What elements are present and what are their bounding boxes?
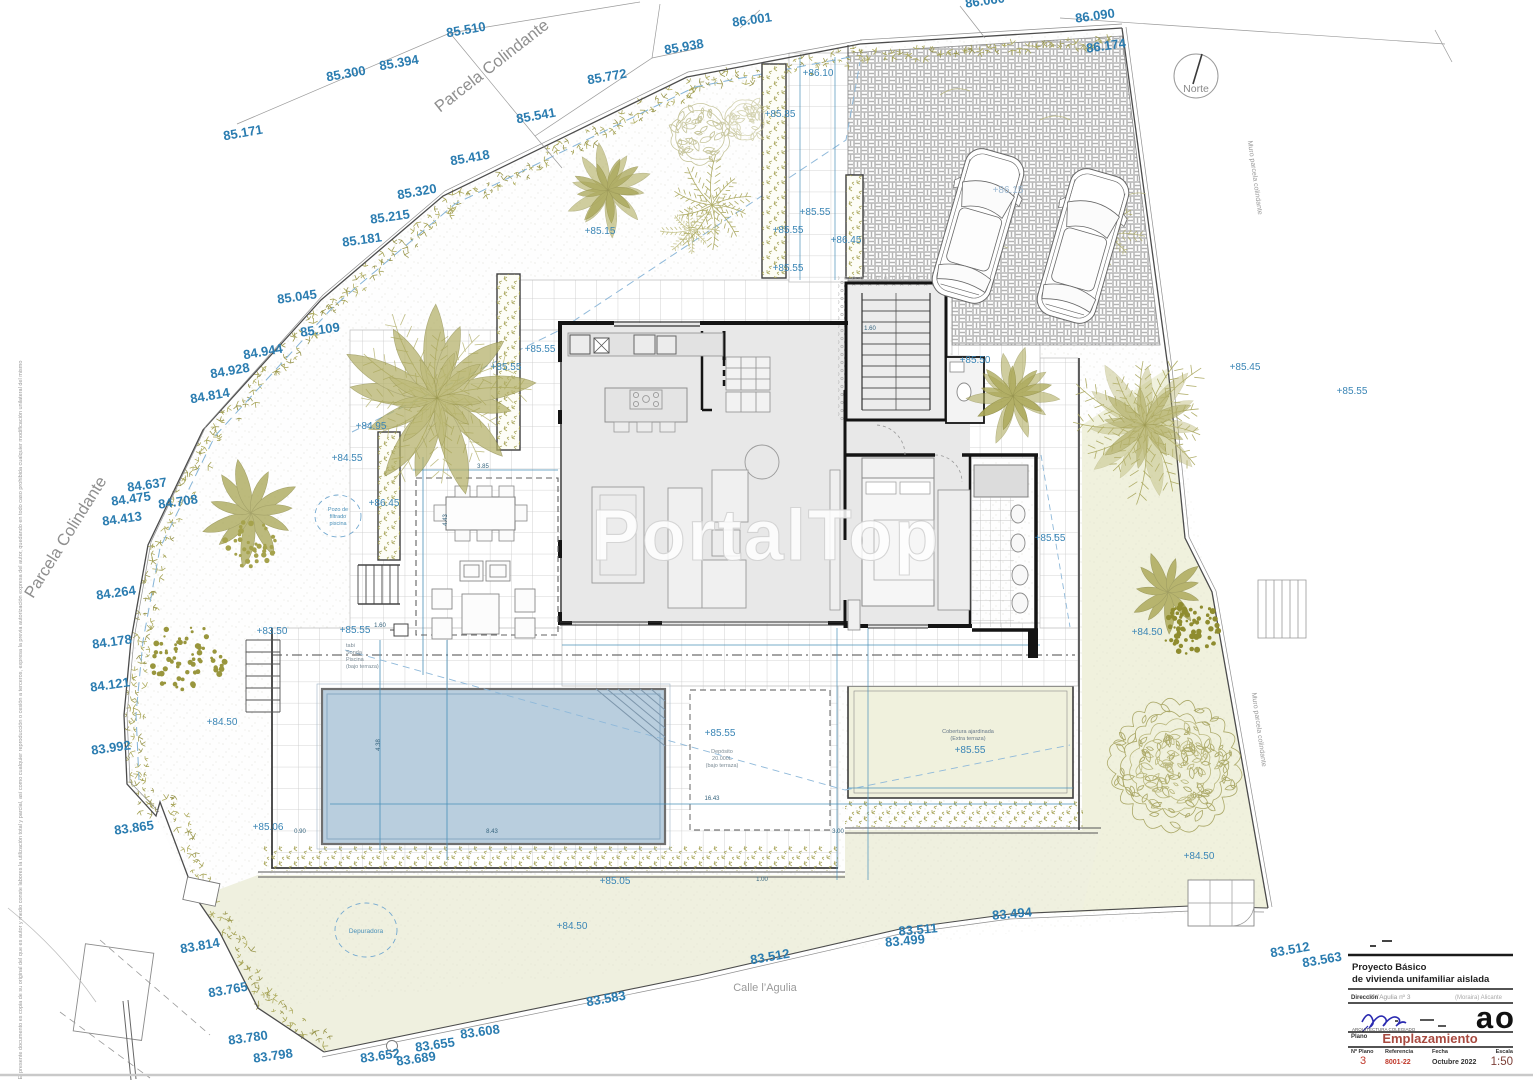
- svg-text:+85.50: +85.50: [960, 355, 991, 366]
- svg-text:(Extra terraza): (Extra terraza): [950, 736, 985, 742]
- svg-text:Piscina: Piscina: [346, 657, 365, 663]
- svg-text:3.85: 3.85: [477, 464, 489, 470]
- svg-text:+85.55: +85.55: [773, 225, 804, 236]
- svg-text:3.00: 3.00: [832, 829, 844, 835]
- svg-text:piscina: piscina: [329, 521, 347, 527]
- svg-text:3: 3: [1360, 1055, 1366, 1067]
- svg-text:1.60: 1.60: [374, 623, 386, 629]
- svg-text:Plano: Plano: [1351, 1034, 1368, 1040]
- svg-text:+84.95: +84.95: [356, 421, 387, 432]
- svg-text:+86.45: +86.45: [369, 498, 400, 509]
- svg-text:Octubre 2022: Octubre 2022: [1432, 1059, 1476, 1066]
- svg-text:de vivienda unifamiliar aislad: de vivienda unifamiliar aislada: [1352, 974, 1490, 985]
- svg-text:+85.55: +85.55: [955, 745, 986, 756]
- svg-text:1.00: 1.00: [756, 877, 768, 883]
- svg-text:0.90: 0.90: [294, 829, 306, 835]
- svg-text:1.60: 1.60: [864, 326, 876, 332]
- svg-text:+83.50: +83.50: [257, 626, 288, 637]
- svg-text:filtrado: filtrado: [330, 514, 347, 520]
- svg-text:Pozo de: Pozo de: [328, 507, 348, 513]
- svg-text:Proyecto Básico: Proyecto Básico: [1352, 962, 1427, 973]
- svg-text:+84.50: +84.50: [557, 921, 588, 932]
- svg-text:Emplazamiento: Emplazamiento: [1382, 1031, 1477, 1046]
- svg-text:tabi: tabi: [346, 643, 355, 649]
- svg-text:+85.15: +85.15: [585, 226, 616, 237]
- svg-text:Depósito: Depósito: [711, 749, 733, 755]
- svg-text:+86.10: +86.10: [803, 68, 834, 79]
- svg-text:+84.50: +84.50: [1132, 627, 1163, 638]
- svg-text:16.43: 16.43: [704, 796, 720, 802]
- svg-text:Fecha: Fecha: [1432, 1049, 1449, 1055]
- svg-text:+85.85: +85.85: [765, 109, 796, 120]
- svg-text:Escala: Escala: [1496, 1049, 1514, 1055]
- svg-text:20.000L: 20.000L: [712, 756, 732, 762]
- svg-text:8001-22: 8001-22: [1385, 1059, 1411, 1066]
- svg-text:+85.55: +85.55: [340, 625, 371, 636]
- svg-text:(bajo terraza): (bajo terraza): [706, 763, 739, 769]
- svg-text:4.38: 4.38: [376, 739, 382, 751]
- svg-text:Referencia: Referencia: [1385, 1049, 1414, 1055]
- svg-text:+84.50: +84.50: [207, 717, 238, 728]
- svg-text:4.43: 4.43: [443, 514, 449, 526]
- svg-text:Cobertura ajardinada: Cobertura ajardinada: [942, 729, 995, 735]
- svg-text:+85.45: +85.45: [1230, 362, 1261, 373]
- svg-text:Norte: Norte: [1183, 83, 1209, 95]
- svg-text:+85.55: +85.55: [491, 362, 522, 373]
- svg-text:Depuradora: Depuradora: [349, 928, 384, 935]
- svg-text:(bajo terraza): (bajo terraza): [346, 664, 379, 670]
- svg-text:8.43: 8.43: [486, 829, 498, 835]
- svg-text:C/ l’Agulia nº 3: C/ l’Agulia nº 3: [1368, 994, 1411, 1001]
- svg-text:+85.55: +85.55: [800, 207, 831, 218]
- svg-text:+84.50: +84.50: [1184, 851, 1215, 862]
- svg-text:+86.45: +86.45: [831, 235, 862, 246]
- svg-text:+85.55: +85.55: [525, 344, 556, 355]
- svg-text:PortalTop: PortalTop: [592, 496, 941, 576]
- svg-text:+85.55: +85.55: [773, 263, 804, 274]
- svg-text:+85.55: +85.55: [1337, 386, 1368, 397]
- svg-text:1:50: 1:50: [1491, 1056, 1513, 1068]
- svg-text:Calle l’Agulia: Calle l’Agulia: [733, 982, 797, 994]
- svg-text:+85.05: +85.05: [600, 876, 631, 887]
- svg-text:+85.55: +85.55: [705, 728, 736, 739]
- svg-text:Sonda: Sonda: [346, 650, 363, 656]
- svg-text:+84.55: +84.55: [332, 453, 363, 464]
- svg-text:+85.55: +85.55: [1035, 533, 1066, 544]
- svg-text:El presente documento es copia: El presente documento es copia de su ori…: [18, 361, 24, 1080]
- svg-text:+85.06: +85.06: [253, 822, 284, 833]
- svg-text:ao: ao: [1476, 1000, 1516, 1035]
- svg-text:+86.15: +86.15: [993, 185, 1024, 196]
